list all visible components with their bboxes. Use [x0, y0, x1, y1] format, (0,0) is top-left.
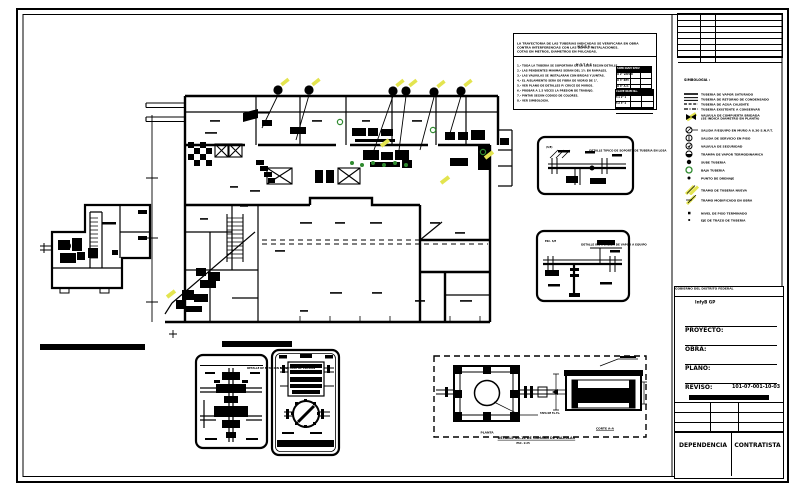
notes-table-1: SIMB DIAM SERV O 2" VAPOR O 3" RET. O 4"… — [616, 66, 652, 89]
revision-table: FECHA REV. D E S C R I P C I O N — [677, 13, 783, 58]
legend-item: VALVULA DE SEGURIDAD — [684, 142, 784, 150]
legend-item: SUBE TUBERIA — [684, 158, 750, 166]
modified-pipe-hatch-icon — [684, 195, 699, 205]
chamber-detail-subtitle: ESC. 1:25 — [466, 432, 581, 451]
title-block-band: RED DE DISTRIBUCION DE VAPOR — [689, 395, 769, 400]
note-item: 6.- PROBAR A 1.5 VECES LA PRESION DE TRA… — [517, 89, 593, 92]
main-floor-plan — [146, 85, 512, 338]
title-block-logo: InfyB GP — [695, 300, 715, 305]
note-item: 1.- TODA LA TUBERIA SE SOPORTARA DE LA L… — [517, 64, 618, 67]
chamber-leader-label: TAPA DE Fo.Fo. — [540, 412, 560, 415]
note-item: 7.- PINTAR SEGUN CODIGO DE COLORES. — [517, 94, 578, 97]
revision-table-header: FECHA REV. D E S C R I P C I O N — [678, 14, 782, 21]
legend-item: EJE DE TRAZO DE TUBERIA — [684, 216, 790, 224]
detail-a-title: DETALLE TIPICO DE SOPORTE DE TUBERIA EN … — [542, 139, 629, 158]
title-block-agency: GOBIERNO DEL DISTRITO FEDERAL — [675, 287, 733, 292]
drawing-number: 101-07-001-10-03 — [732, 384, 780, 390]
note-item: 8.- VER SIMBOLOGIA. — [517, 99, 549, 102]
legend: SIMBOLOGIA : TUBERIA DE VAPOR SATURADO T… — [684, 78, 780, 228]
left-partial-plan — [40, 205, 150, 293]
legend-item: SALIDA DE SERVICIO EN PISO — [684, 134, 800, 142]
field-obra: OBRA: — [685, 336, 777, 346]
detail-d-footer: DETALLE DE TRAMPA DE VAPOR — [277, 440, 334, 447]
notes-paragraph-line: CONTRA INTERFERENCIAS CON LAS DEMAS INST… — [517, 46, 619, 50]
floor-outlet-icon — [684, 134, 699, 142]
riser-down-icon — [684, 166, 699, 174]
detail-c-title: DETALLE DE ESTACION REDUCTORA DE PRESION — [200, 357, 263, 366]
legend-title: SIMBOLOGIA : — [684, 78, 710, 82]
legend-item: PUNTO DE DRENAJE — [684, 174, 767, 182]
safety-valve-icon — [684, 142, 699, 150]
field-proyecto: PROYECTO: — [685, 317, 777, 327]
detail-b-subtitle: ESC. S/E — [545, 240, 556, 243]
field-plano: PLANO: — [685, 355, 777, 365]
notes-table-2: CLAVE DIAM No. T-1 2" 1 T-2 3" 2 T-3 4" … — [615, 89, 654, 109]
legend-item: BAJA TUBERIA — [684, 166, 748, 174]
balloon-leaders — [258, 95, 461, 158]
legend-item: VALVULA DE COMPUERTA BRIDADA (SE INDICA … — [684, 111, 800, 123]
text-dashes — [200, 120, 472, 312]
notes-box: N O T A : LA TRAYECTORIA DE LAS TUBERIAS… — [513, 33, 657, 110]
legend-item: SALIDA P/EQUIPO EN MURO A 0.30 S.N.P.T. — [684, 126, 800, 134]
drain-point-icon — [684, 174, 699, 182]
axis-mark-icon — [684, 216, 699, 224]
legend-item: TRAMO DE TUBERIA NUEVA — [684, 185, 793, 195]
scale-bars — [40, 341, 292, 350]
detail-a-subtitle: (S/E) — [546, 146, 552, 149]
note-item: 4.- EL AISLAMIENTO SERA DE FIBRA DE VIDR… — [517, 79, 598, 82]
title-block-bottom-cells: DEPENDENCIA CONTRATISTA — [675, 431, 783, 476]
note-item: 2.- LAS PENDIENTES MINIMAS SERAN DEL 1% … — [517, 69, 607, 72]
field-reviso: REVISO: — [685, 374, 777, 384]
note-item: 5.- VER PLANO DE DETALLES P/ CRUCE DE MU… — [517, 84, 593, 87]
legend-item: TRAMO MODIFICADO EN OBRA — [684, 195, 800, 205]
shaft-xbox-symbols — [215, 144, 360, 184]
riser-up-icon — [684, 158, 699, 166]
valve-icon — [684, 112, 699, 122]
title-block: GOBIERNO DEL DISTRITO FEDERAL D.G.C.O.H.… — [674, 286, 784, 479]
chamber-section-label: CORTE A-A — [575, 417, 635, 436]
steam-trap-icon — [684, 150, 699, 158]
notes-paragraph-line: LA TRAYECTORIA DE LAS TUBERIAS INDICADAS… — [517, 42, 639, 46]
cad-sheet: { "revision_table": { "headers": ["FECHA… — [0, 0, 800, 492]
equipment-clusters — [176, 120, 509, 312]
bottom-cell-right: CONTRATISTA — [732, 432, 783, 476]
title-block-header: GOBIERNO DEL DISTRITO FEDERAL D.G.C.O.H. — [675, 287, 783, 297]
note-item: 3.- LAS VALVULAS SE INSTALARAN CON BRIDA… — [517, 74, 605, 77]
revision-row — [678, 57, 782, 63]
legend-item: TRAMPA DE VAPOR TERMODINAMICA — [684, 150, 800, 158]
new-pipe-hatch-icon — [684, 185, 699, 195]
title-block-grid: ESCALA 1:100 ACOT: m // DIBUJO // FECHA … — [675, 402, 783, 433]
bottom-cell-left: DEPENDENCIA — [675, 432, 732, 476]
wall-outlet-icon — [684, 126, 699, 134]
